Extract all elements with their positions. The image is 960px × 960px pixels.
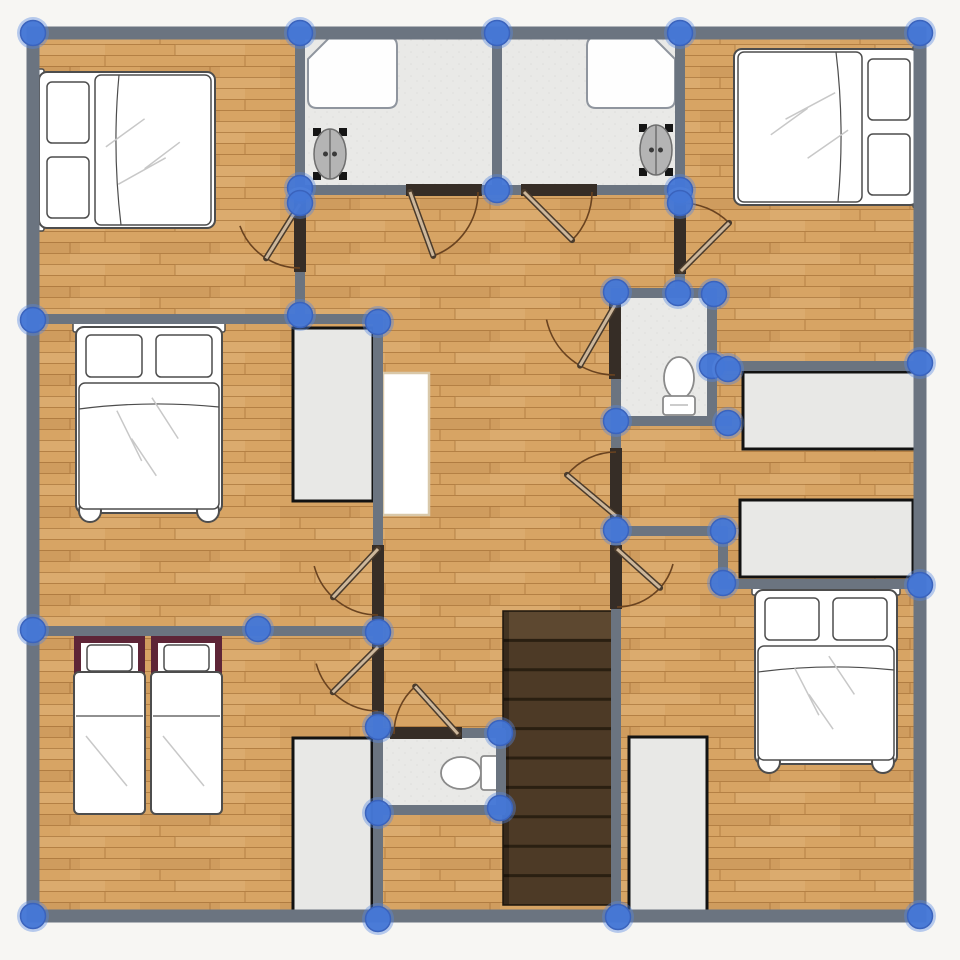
pillow — [47, 82, 89, 143]
pillow — [833, 598, 887, 640]
wall-node-handle — [711, 519, 736, 544]
bed-duvet — [758, 646, 894, 760]
toilet-bowl — [664, 357, 694, 399]
bed[interactable] — [734, 46, 923, 208]
wall-node[interactable] — [484, 717, 516, 749]
wall-node-handle — [604, 280, 629, 305]
floorplan-svg — [0, 0, 960, 960]
floorplan-canvas — [0, 0, 960, 960]
wall-node-handle — [716, 357, 741, 382]
bed-duvet — [95, 75, 211, 225]
wall-node-handle — [606, 905, 631, 930]
wardrobe[interactable] — [629, 737, 707, 912]
pillow — [86, 335, 142, 377]
wall-node-handle — [908, 904, 933, 929]
wall-node-handle — [908, 573, 933, 598]
door-jamb — [406, 184, 482, 196]
wall-node[interactable] — [17, 17, 49, 49]
pillow — [87, 645, 132, 671]
sink-tap — [323, 152, 328, 157]
toilet[interactable] — [663, 357, 695, 415]
wall-node[interactable] — [362, 306, 394, 338]
pillow — [868, 59, 910, 120]
staircase[interactable] — [503, 611, 613, 905]
wall-node-handle — [288, 303, 313, 328]
wall-node[interactable] — [362, 903, 394, 935]
wall-node-handle — [288, 191, 313, 216]
wall-node-handle — [21, 308, 46, 333]
sink-tap — [649, 148, 654, 153]
shelf[interactable] — [383, 373, 429, 515]
sink[interactable] — [313, 128, 347, 180]
wall-node-handle — [668, 191, 693, 216]
wall-node[interactable] — [698, 278, 730, 310]
wall-node[interactable] — [284, 299, 316, 331]
pillow — [164, 645, 209, 671]
wall-node-handle — [288, 21, 313, 46]
wall-node-handle — [668, 21, 693, 46]
wall-node[interactable] — [17, 304, 49, 336]
wall-node[interactable] — [664, 17, 696, 49]
wardrobe[interactable] — [740, 500, 913, 577]
toilet[interactable] — [441, 756, 501, 790]
wall-node-handle — [21, 904, 46, 929]
wall-node[interactable] — [17, 614, 49, 646]
wall-node-handle — [21, 21, 46, 46]
bed-duvet — [79, 383, 219, 509]
wall-node[interactable] — [600, 405, 632, 437]
wall-node-handle — [485, 178, 510, 203]
wall-node[interactable] — [904, 569, 936, 601]
stairs-top-tread — [503, 611, 613, 640]
wall-node[interactable] — [600, 276, 632, 308]
wall-node[interactable] — [284, 17, 316, 49]
wall-node-handle — [21, 618, 46, 643]
wall-node[interactable] — [284, 187, 316, 219]
wall-node[interactable] — [481, 174, 513, 206]
wall-node[interactable] — [707, 515, 739, 547]
pillow — [47, 157, 89, 218]
wall-node-handle — [488, 721, 513, 746]
wall-node[interactable] — [481, 17, 513, 49]
wall-node[interactable] — [712, 353, 744, 385]
door-jamb — [521, 184, 597, 196]
wall-node[interactable] — [17, 900, 49, 932]
bed[interactable] — [752, 585, 900, 773]
wall-node[interactable] — [362, 797, 394, 829]
sink-tap — [658, 148, 663, 153]
wall-node[interactable] — [707, 567, 739, 599]
wall-node-handle — [908, 21, 933, 46]
wall-node-handle — [485, 21, 510, 46]
wall-node[interactable] — [362, 616, 394, 648]
wall-node[interactable] — [362, 711, 394, 743]
wall-node[interactable] — [904, 347, 936, 379]
wall-node-handle — [711, 571, 736, 596]
wall-node[interactable] — [242, 613, 274, 645]
sink-tap — [332, 152, 337, 157]
wall-node-handle — [716, 411, 741, 436]
twin-duvet — [74, 672, 145, 814]
twin-duvet — [151, 672, 222, 814]
wall-node-handle — [246, 617, 271, 642]
wall-node-handle — [366, 310, 391, 335]
wardrobe[interactable] — [293, 738, 372, 913]
wall-node-handle — [908, 351, 933, 376]
wall-node[interactable] — [600, 514, 632, 546]
toilet-bowl — [441, 757, 481, 789]
wall-node-handle — [366, 801, 391, 826]
pillow — [765, 598, 819, 640]
bathtub[interactable] — [308, 37, 397, 108]
bed[interactable] — [73, 322, 225, 522]
wall-node-handle — [702, 282, 727, 307]
wall-node-handle — [604, 409, 629, 434]
bed[interactable] — [34, 69, 215, 231]
pillow — [868, 134, 910, 195]
wall-node-handle — [366, 907, 391, 932]
wall-node[interactable] — [664, 187, 696, 219]
wall-node-handle — [488, 796, 513, 821]
wall-node[interactable] — [904, 900, 936, 932]
wardrobe[interactable] — [743, 372, 917, 449]
wall-node[interactable] — [712, 407, 744, 439]
wall-node-handle — [666, 281, 691, 306]
wall-node-handle — [366, 715, 391, 740]
bathtub[interactable] — [587, 37, 675, 108]
wall-node[interactable] — [484, 792, 516, 824]
wall-node[interactable] — [904, 17, 936, 49]
wall-node[interactable] — [662, 277, 694, 309]
wardrobe[interactable] — [293, 328, 373, 501]
wall-node-handle — [366, 620, 391, 645]
pillow — [156, 335, 212, 377]
bed-duvet — [738, 52, 862, 202]
wall-node-handle — [604, 518, 629, 543]
wall-node[interactable] — [602, 901, 634, 933]
door-jamb — [610, 448, 622, 519]
sink[interactable] — [639, 124, 673, 176]
